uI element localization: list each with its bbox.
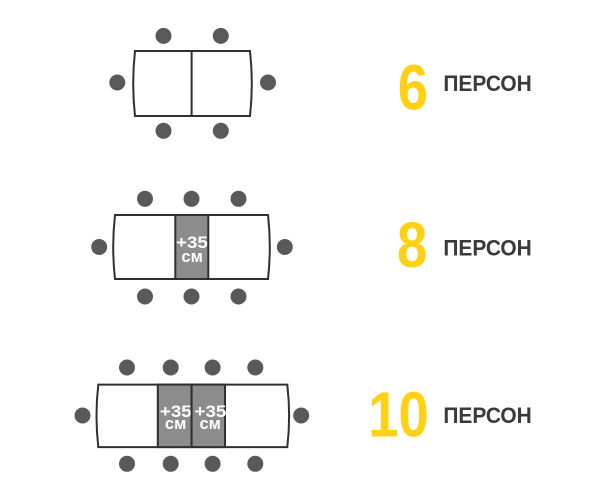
svg-text:ПЕРСОН: ПЕРСОН [443,72,531,96]
svg-text:8: 8 [397,209,427,281]
svg-text:ПЕРСОН: ПЕРСОН [443,404,531,428]
svg-text:6: 6 [398,51,428,123]
svg-text:ПЕРСОН: ПЕРСОН [443,236,531,260]
svg-text:см: см [181,248,202,266]
svg-text:см: см [165,415,186,433]
svg-text:10: 10 [368,379,428,451]
svg-text:см: см [200,415,221,433]
